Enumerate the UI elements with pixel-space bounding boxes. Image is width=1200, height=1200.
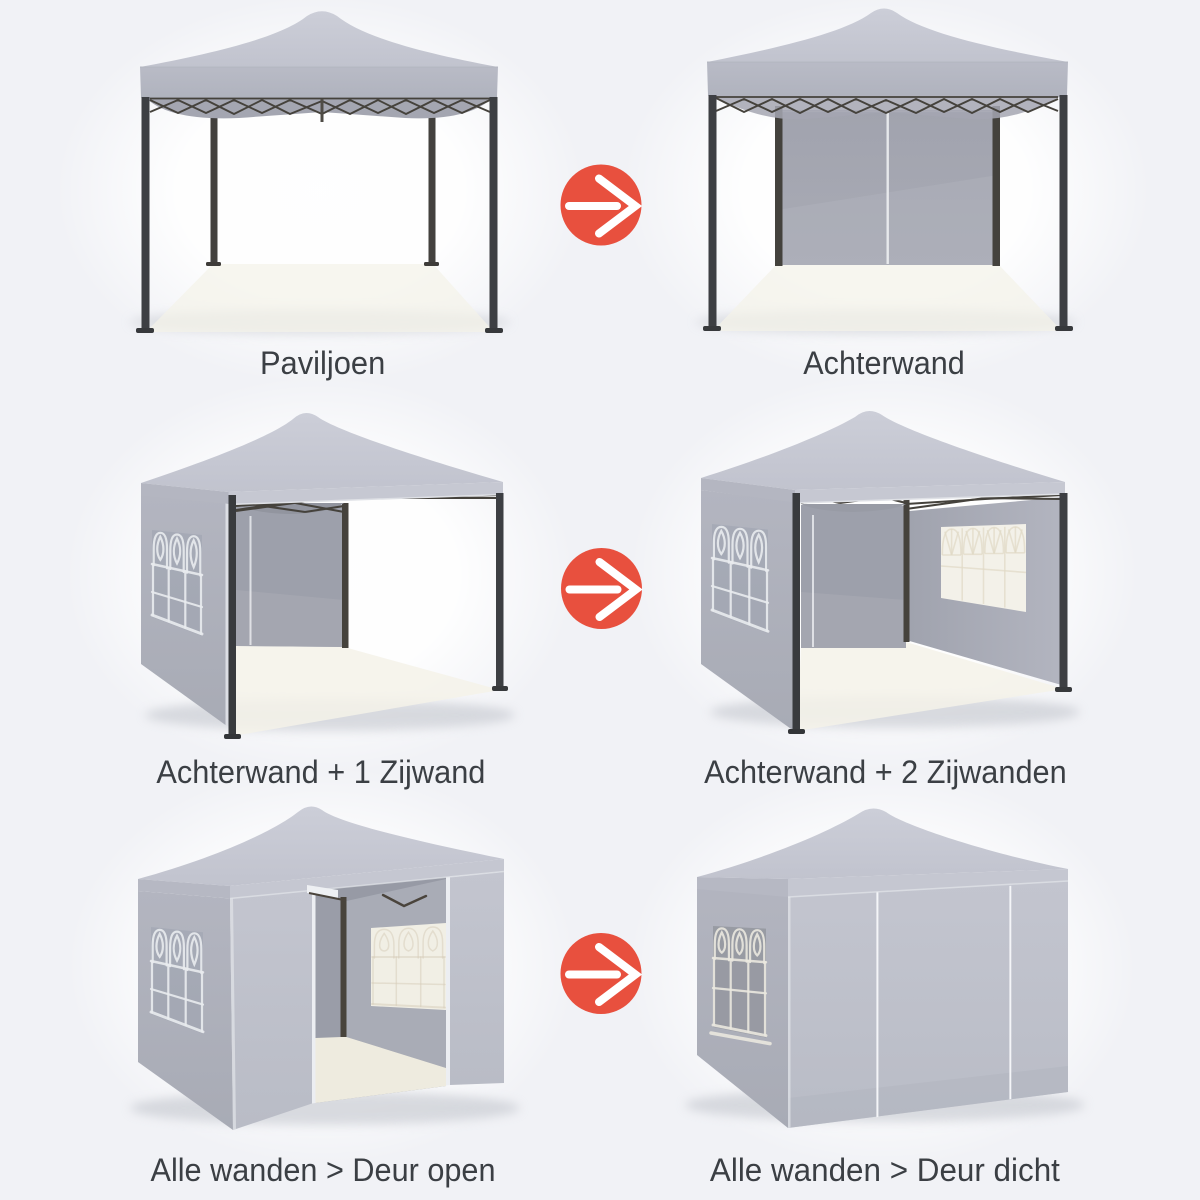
svg-text:Alle wanden > Deur dicht: Alle wanden > Deur dicht — [710, 1152, 1060, 1188]
svg-text:Achterwand + 2 Zijwanden: Achterwand + 2 Zijwanden — [704, 754, 1067, 790]
svg-text:Paviljoen: Paviljoen — [260, 345, 385, 381]
svg-text:Alle wanden > Deur open: Alle wanden > Deur open — [151, 1152, 496, 1188]
svg-text:Achterwand + 1 Zijwand: Achterwand + 1 Zijwand — [156, 754, 485, 790]
svg-text:Achterwand: Achterwand — [803, 345, 964, 381]
